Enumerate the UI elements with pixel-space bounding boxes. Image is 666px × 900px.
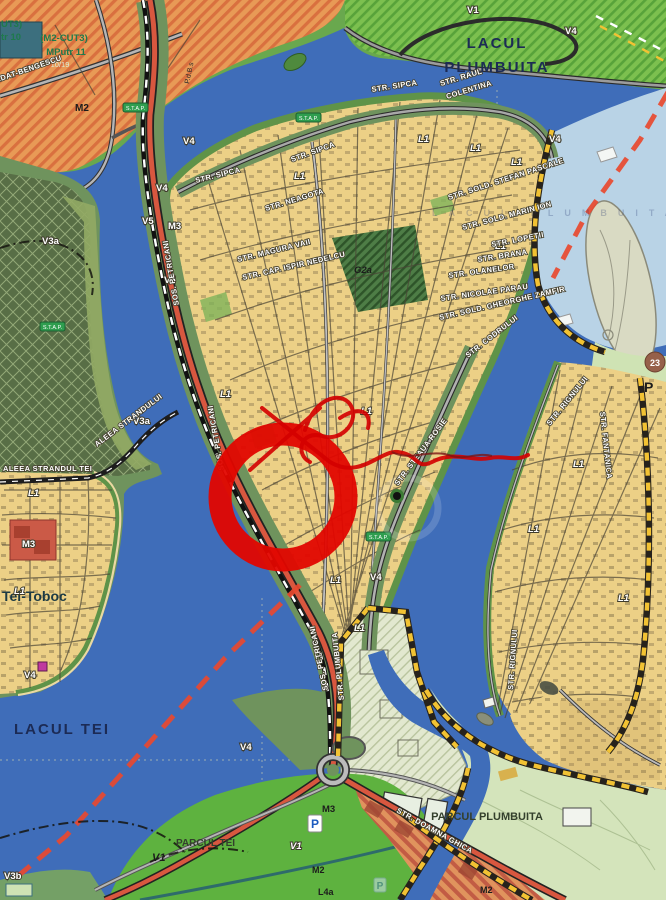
svg-text:L1: L1 — [528, 524, 539, 535]
svg-text:L1: L1 — [354, 623, 365, 634]
district-label-tei-toboc: Tei-Toboc — [2, 588, 67, 604]
svg-text:L1: L1 — [294, 171, 305, 182]
zone-label-v4: V4 — [240, 742, 252, 753]
monument-marker — [38, 662, 47, 671]
stap-badge-text: S.T.A.P. — [369, 535, 389, 541]
zone-label-v4: V4 — [183, 136, 195, 147]
zone-label-g2a: G2a — [354, 265, 372, 276]
zone-label-v1: V1 — [290, 841, 302, 852]
monastery-building — [563, 808, 591, 826]
svg-text:L1: L1 — [220, 389, 231, 400]
zone-label-v1: V1 — [467, 5, 479, 16]
zone-label-v4: V4 — [24, 670, 36, 681]
stap-badge: S.T.A.P. — [40, 322, 65, 331]
stap-badge: S.T.A.P. — [123, 103, 148, 112]
svg-text:L1: L1 — [28, 488, 39, 499]
zone-label-v4: V4 — [156, 183, 168, 194]
zone-label-m2cut3: (M2-CUT3) — [40, 33, 88, 44]
zone-label-m3: M3 — [322, 804, 335, 815]
parking-badge-text: P — [311, 817, 319, 831]
park-label-plumbuita: PARCUL PLUMBUITA — [431, 811, 543, 823]
parking-badge: P — [308, 815, 322, 832]
zone-label-v4: V4 — [565, 26, 577, 37]
zone-label-l4a: L4a — [318, 887, 335, 897]
svg-text:L1: L1 — [330, 575, 341, 586]
scanned-zoning-map: S.T.A.P. S.T.A.P. S.T.A.P. S.T.A.P. P P … — [0, 0, 666, 900]
parking-badge-faint: P — [374, 878, 386, 892]
badge-23-text: 23 — [650, 358, 660, 368]
zone-label-v5: V5 — [142, 216, 154, 227]
zone-label-m2: M2 — [480, 885, 493, 895]
zone-label-m3: M3 — [168, 221, 181, 232]
zone-label-v3b: V3b — [4, 871, 22, 882]
svg-text:L1: L1 — [511, 157, 522, 168]
stap-badge-text: S.T.A.P. — [126, 106, 146, 112]
svg-text:L1: L1 — [618, 593, 629, 604]
svg-text:L1: L1 — [418, 134, 429, 145]
map-canvas: S.T.A.P. S.T.A.P. S.T.A.P. S.T.A.P. P P … — [0, 0, 666, 900]
zone-label-v4: V4 — [370, 572, 382, 583]
svg-text:L1: L1 — [573, 459, 584, 470]
stap-badge: S.T.A.P. — [296, 113, 321, 122]
lake-label-plumbuita: LACUL — [467, 35, 528, 52]
zone-label-v1: V1 — [152, 852, 165, 864]
point-marker — [393, 492, 401, 500]
park-label-tei: PARCUL TEI — [176, 838, 235, 849]
svg-text:L1: L1 — [14, 586, 25, 597]
zone-label-m2: M2 — [75, 103, 89, 114]
zone-label-frag: tr 10 — [1, 32, 21, 43]
zone-label-frag: UT3) — [1, 19, 22, 30]
parking-badge-text: P — [377, 881, 384, 892]
svg-text:L1: L1 — [470, 143, 481, 154]
stap-badge-text: S.T.A.P. — [299, 116, 319, 122]
stap-badge-text: S.T.A.P. — [43, 325, 63, 331]
svg-text:ALEEA STRANDUL TEI: ALEEA STRANDUL TEI — [3, 464, 92, 473]
lake-label-tei: LACUL TEI — [14, 721, 110, 738]
lake-ghost-label: LACUL PLUMBUITA — [432, 208, 666, 218]
zone-label-m3: M3 — [22, 539, 35, 550]
zone-label-m2: M2 — [312, 865, 325, 875]
zone-label-v3a: V3a — [42, 236, 60, 247]
zone-label-p-fragment: P — [644, 379, 653, 395]
zone-label-v4: V4 — [549, 134, 561, 145]
